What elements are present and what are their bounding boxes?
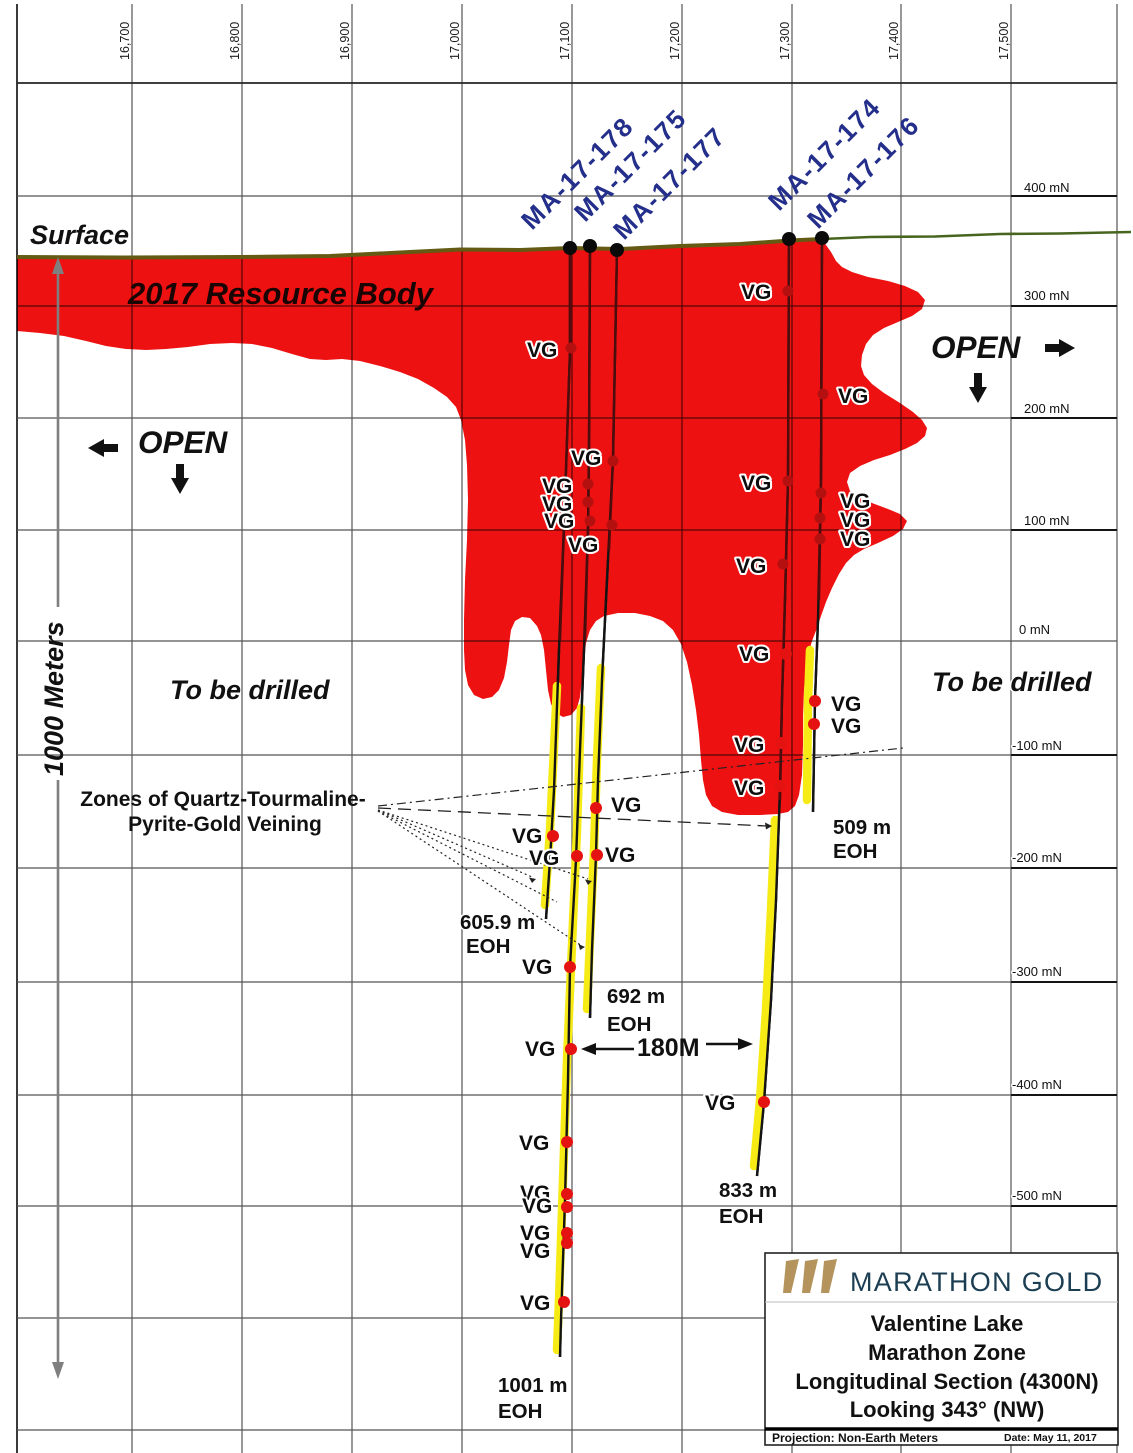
svg-text:VG: VG [529,847,559,870]
svg-text:VG: VG [519,1132,549,1155]
svg-text:Looking 343° (NW): Looking 343° (NW) [850,1397,1045,1422]
svg-text:VG: VG [522,956,552,979]
svg-text:EOH: EOH [607,1013,651,1036]
svg-text:VG: VG [705,1092,735,1115]
svg-text:833 m: 833 m [719,1179,777,1202]
svg-text:EOH: EOH [833,840,877,863]
svg-text:EOH: EOH [719,1205,763,1228]
svg-text:Zones of Quartz-Tourmaline-: Zones of Quartz-Tourmaline- [80,788,365,811]
svg-text:VG: VG [739,643,769,666]
svg-text:VG: VG [522,1195,552,1218]
svg-text:200 mN: 200 mN [1024,401,1070,416]
svg-text:-300 mN: -300 mN [1012,964,1062,979]
svg-text:VG: VG [525,1038,555,1061]
svg-text:To be drilled: To be drilled [932,667,1092,697]
svg-text:-400 mN: -400 mN [1012,1077,1062,1092]
svg-text:VG: VG [611,794,641,817]
svg-text:509 m: 509 m [833,816,891,839]
svg-text:VG: VG [527,339,557,362]
svg-text:VG: VG [605,844,635,867]
svg-text:VG: VG [831,715,861,738]
svg-text:Date: May 11, 2017: Date: May 11, 2017 [1004,1432,1097,1444]
svg-text:Longitudinal Section (4300N): Longitudinal Section (4300N) [795,1369,1098,1394]
svg-text:Marathon Zone: Marathon Zone [868,1340,1026,1365]
svg-text:1000 Meters: 1000 Meters [39,621,69,776]
svg-text:VG: VG [512,825,542,848]
svg-text:16,900: 16,900 [338,22,352,60]
svg-text:605.9 m: 605.9 m [460,911,535,934]
svg-text:To be drilled: To be drilled [170,675,330,705]
svg-text:VG: VG [544,510,574,533]
svg-text:Surface: Surface [30,220,129,250]
svg-text:VG: VG [734,777,764,800]
svg-text:-500 mN: -500 mN [1012,1188,1062,1203]
svg-text:VG: VG [741,281,771,304]
svg-text:17,500: 17,500 [997,22,1011,60]
svg-text:VG: VG [568,534,598,557]
svg-text:17,100: 17,100 [558,22,572,60]
svg-text:EOH: EOH [466,935,510,958]
svg-text:17,300: 17,300 [778,22,792,60]
svg-text:300 mN: 300 mN [1024,288,1070,303]
svg-text:16,700: 16,700 [118,22,132,60]
svg-text:-200 mN: -200 mN [1012,850,1062,865]
svg-text:VG: VG [736,555,766,578]
svg-text:0 mN: 0 mN [1019,622,1050,637]
svg-text:Valentine Lake: Valentine Lake [871,1311,1024,1336]
svg-text:VG: VG [520,1292,550,1315]
svg-text:Projection: Non-Earth Meters: Projection: Non-Earth Meters [772,1431,938,1445]
svg-text:180M: 180M [637,1034,700,1062]
svg-text:17,400: 17,400 [887,22,901,60]
svg-text:1001 m: 1001 m [498,1374,568,1397]
svg-text:VG: VG [838,385,868,408]
svg-text:VG: VG [520,1240,550,1263]
svg-text:692 m: 692 m [607,985,665,1008]
svg-text:MARATHON GOLD: MARATHON GOLD [850,1267,1103,1297]
svg-text:EOH: EOH [498,1400,542,1423]
svg-text:100 mN: 100 mN [1024,513,1070,528]
svg-text:2017 Resource Body: 2017 Resource Body [127,276,435,311]
svg-text:VG: VG [741,472,771,495]
svg-text:Pyrite-Gold Veining: Pyrite-Gold Veining [128,813,322,836]
svg-text:VG: VG [734,734,764,757]
svg-text:OPEN: OPEN [931,329,1022,365]
svg-text:-100 mN: -100 mN [1012,738,1062,753]
svg-text:VG: VG [571,447,601,470]
svg-text:VG: VG [840,528,870,551]
svg-text:400 mN: 400 mN [1024,180,1070,195]
svg-text:OPEN: OPEN [138,424,229,460]
svg-text:16,800: 16,800 [228,22,242,60]
svg-text:17,000: 17,000 [448,22,462,60]
svg-text:17,200: 17,200 [668,22,682,60]
svg-text:VG: VG [831,693,861,716]
